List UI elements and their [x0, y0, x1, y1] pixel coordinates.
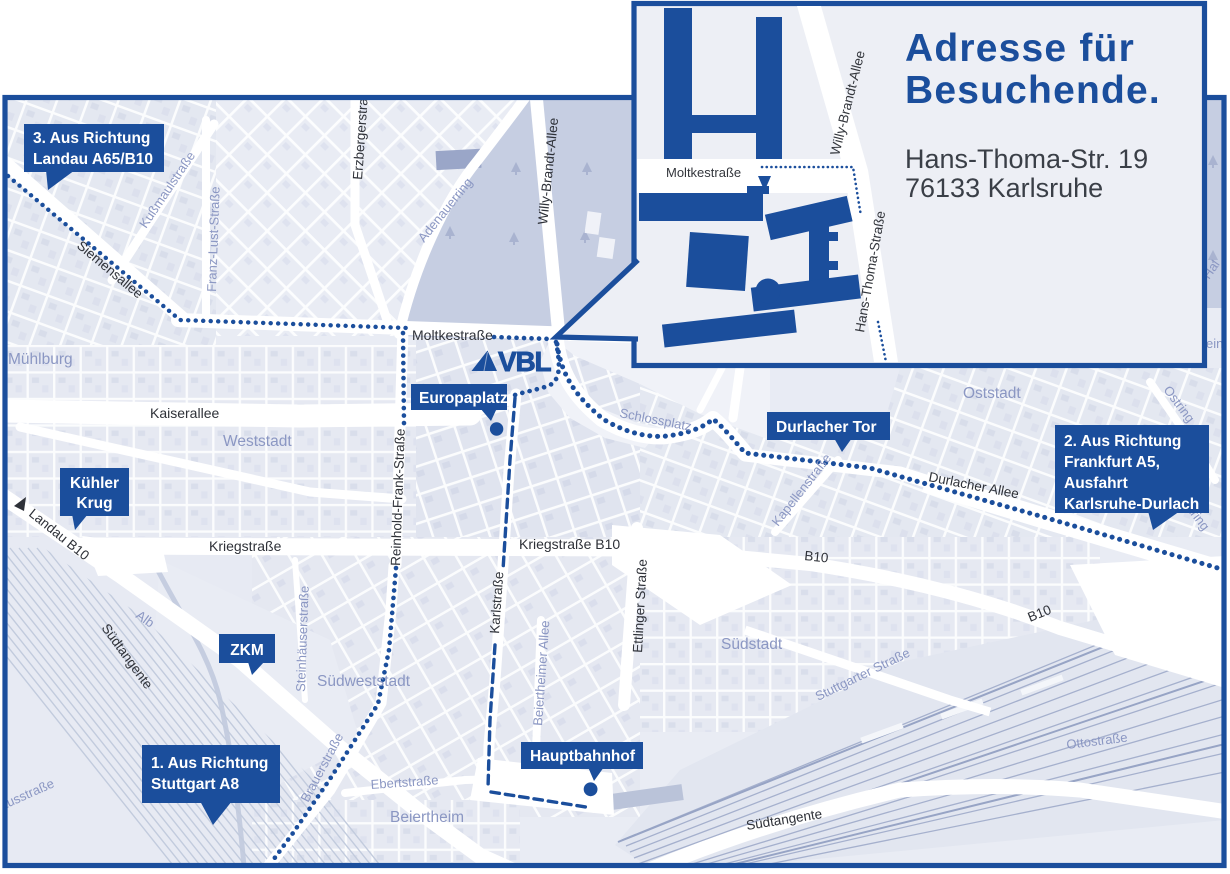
svg-text:Frankfurt A5,: Frankfurt A5,: [1064, 454, 1160, 471]
svg-text:Adresse für: Adresse für: [905, 27, 1135, 70]
svg-text:Durlacher Tor: Durlacher Tor: [776, 419, 877, 436]
svg-text:Stuttgart A8: Stuttgart A8: [151, 776, 239, 793]
svg-text:Beiertheim: Beiertheim: [390, 809, 464, 826]
svg-text:VBL: VBL: [498, 346, 551, 377]
svg-text:3. Aus Richtung: 3. Aus Richtung: [33, 130, 150, 147]
svg-text:2. Aus Richtung: 2. Aus Richtung: [1064, 433, 1181, 450]
svg-text:Südstadt: Südstadt: [721, 636, 783, 653]
svg-text:76133 Karlsruhe: 76133 Karlsruhe: [905, 173, 1103, 203]
svg-text:Südweststadt: Südweststadt: [317, 673, 411, 690]
svg-text:Oststadt: Oststadt: [963, 385, 1021, 402]
svg-text:Kriegstraße: Kriegstraße: [209, 538, 282, 554]
svg-text:Weststadt: Weststadt: [223, 433, 292, 450]
svg-text:ZKM: ZKM: [230, 642, 264, 659]
svg-text:Ausfahrt: Ausfahrt: [1064, 475, 1128, 492]
svg-text:Kriegstraße B10: Kriegstraße B10: [519, 536, 620, 552]
svg-text:B10: B10: [804, 548, 829, 565]
svg-text:Karlsruhe-Durlach: Karlsruhe-Durlach: [1064, 496, 1199, 513]
svg-text:Moltkestraße: Moltkestraße: [666, 165, 741, 180]
svg-text:Kaiserallee: Kaiserallee: [150, 405, 219, 421]
svg-text:Hans-Thoma-Str. 19: Hans-Thoma-Str. 19: [905, 144, 1148, 174]
svg-text:Mühlburg: Mühlburg: [8, 351, 73, 368]
svg-text:Kühler: Kühler: [70, 475, 119, 492]
svg-text:Landau A65/B10: Landau A65/B10: [33, 151, 153, 168]
svg-text:Moltkestraße: Moltkestraße: [412, 327, 493, 343]
svg-text:ein: ein: [1206, 336, 1223, 351]
svg-text:Europaplatz: Europaplatz: [419, 390, 508, 407]
svg-text:Besuchende.: Besuchende.: [905, 69, 1161, 112]
svg-text:Hauptbahnhof: Hauptbahnhof: [530, 748, 636, 765]
svg-text:Krug: Krug: [76, 495, 112, 512]
svg-text:1. Aus Richtung: 1. Aus Richtung: [151, 755, 268, 772]
